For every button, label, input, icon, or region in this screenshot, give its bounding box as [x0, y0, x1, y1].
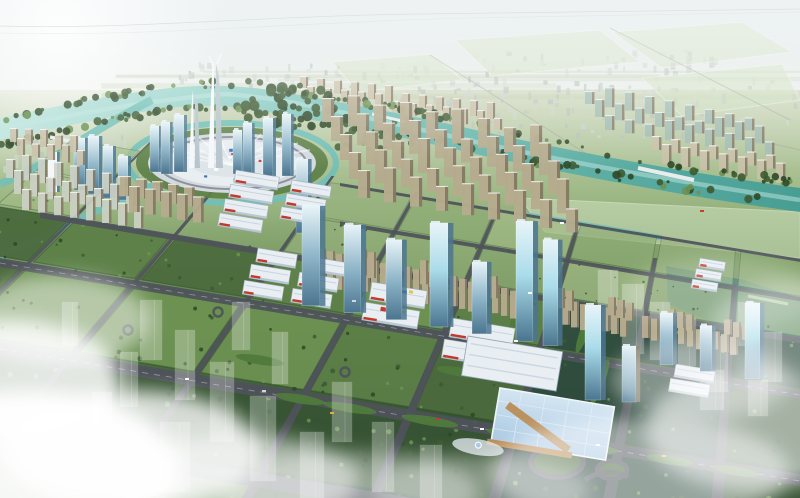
residential-roof	[184, 186, 195, 187]
residential-tower	[177, 194, 185, 220]
parcel-tree	[178, 276, 182, 280]
residential-tower-side	[137, 186, 140, 212]
residential-tower-side	[393, 167, 396, 202]
residential-roof	[168, 184, 179, 185]
ghost-building	[175, 330, 195, 400]
car	[480, 428, 484, 430]
glass-tower-crown	[544, 238, 552, 240]
car	[262, 390, 266, 392]
residential-roof	[46, 177, 55, 178]
parcel-tree	[116, 234, 118, 236]
parcel-tree	[439, 382, 443, 386]
parcel-tree	[261, 378, 266, 383]
aerial-masterplan-render	[0, 0, 800, 498]
glass-tower	[344, 225, 361, 313]
residential-slab	[566, 291, 572, 311]
residential-roof	[531, 181, 543, 182]
residential-tower-side	[445, 186, 448, 211]
residential-tower-side	[61, 196, 63, 215]
residential-tower	[86, 195, 93, 220]
residential-tower-side	[185, 194, 188, 220]
glass-tower	[585, 305, 601, 400]
car	[352, 300, 356, 302]
residential-tower	[384, 167, 393, 202]
parcel-tree	[493, 384, 496, 387]
residential-roof	[110, 184, 119, 185]
residential-tower	[505, 172, 514, 205]
residential-roof	[145, 189, 156, 190]
residential-tower	[410, 177, 419, 207]
parcel-tree	[396, 367, 399, 370]
bank-tree	[707, 186, 715, 194]
car	[700, 210, 704, 212]
parcel-tree	[41, 241, 43, 243]
residential-slab-side	[614, 297, 616, 315]
parcel-tree	[230, 277, 234, 281]
residential-roof	[193, 196, 204, 197]
residential-tower	[161, 191, 169, 217]
parcel-tree	[147, 252, 150, 255]
residential-roof	[120, 176, 131, 177]
residential-roof	[62, 181, 71, 182]
residential-roof	[505, 172, 517, 173]
residential-slab-side	[498, 285, 500, 313]
residential-slab-side	[577, 301, 579, 327]
residential-slab	[510, 291, 516, 319]
residential-tower-side	[53, 177, 55, 199]
parcel-tree	[269, 328, 272, 331]
residential-slab-side	[563, 288, 565, 308]
residential-roof	[70, 192, 79, 193]
glass-tower-side	[361, 225, 366, 313]
glass-tower-side	[558, 240, 563, 346]
residential-tower-side	[125, 203, 127, 226]
car	[528, 292, 532, 294]
atmosphere-wash	[0, 0, 800, 170]
parcel-tree	[470, 413, 474, 417]
parcel-tree	[236, 253, 240, 257]
glass-tower	[430, 223, 448, 327]
bank-tree	[628, 174, 634, 180]
expo-fountain	[475, 442, 482, 449]
residential-slab	[501, 288, 507, 316]
parcel-tree	[341, 243, 343, 245]
parcel-tree	[563, 339, 567, 343]
residential-tower-side	[201, 196, 204, 222]
residential-tower	[120, 176, 128, 196]
bank-tree	[731, 171, 735, 175]
parcel-tree	[460, 406, 463, 409]
residential-tower-side	[549, 199, 552, 228]
bank-tree	[696, 190, 700, 194]
residential-slab-side	[572, 291, 574, 311]
parcel-tree	[409, 440, 413, 444]
glass-tower-side	[402, 240, 407, 320]
residential-tower	[38, 193, 45, 213]
bank-tree	[782, 179, 789, 186]
residential-tower-side	[93, 169, 95, 191]
residential-tower-side	[141, 206, 143, 228]
ghost-building	[232, 302, 250, 350]
glass-tower-crown	[431, 221, 440, 223]
residential-roof	[54, 196, 63, 197]
residential-roof	[514, 190, 526, 191]
parcel-tree	[313, 335, 317, 339]
bank-tree	[612, 171, 621, 180]
bank-tree	[738, 173, 746, 181]
residential-slab-side	[623, 300, 625, 318]
car	[185, 378, 189, 380]
residential-tower	[427, 168, 436, 192]
glass-tower	[386, 240, 402, 320]
residential-tower-side	[109, 199, 111, 223]
bank-tree	[744, 195, 752, 203]
bank-tree	[772, 173, 779, 180]
residential-tower	[14, 170, 21, 194]
residential-slab-side	[456, 276, 458, 306]
parcel-tree	[298, 344, 302, 348]
residential-tower	[540, 199, 549, 228]
parcel-tree	[564, 363, 568, 367]
residential-tower	[514, 190, 523, 224]
glass-tower-side	[487, 262, 492, 334]
residential-tower-side	[29, 189, 31, 210]
parcel-tree	[238, 408, 243, 413]
parcel-tree	[596, 300, 598, 302]
residential-tower	[145, 189, 153, 215]
parcel-tree	[585, 293, 587, 295]
parcel-tree	[639, 414, 642, 417]
residential-roof	[479, 175, 491, 176]
parcel-tree	[448, 433, 452, 437]
bank-tree	[754, 193, 761, 200]
residential-slab	[420, 260, 426, 284]
residential-roof	[118, 203, 127, 204]
parcel-tree	[114, 356, 117, 359]
residential-slab	[617, 300, 623, 318]
car	[330, 412, 334, 414]
residential-tower-side	[45, 193, 47, 213]
residential-tower-side	[153, 189, 156, 215]
residential-tower-side	[93, 195, 95, 220]
glass-tower-crown	[303, 204, 312, 206]
residential-tower	[436, 186, 445, 211]
glass-tower-crown	[517, 219, 526, 221]
plaza-pavilion	[204, 175, 207, 177]
residential-roof	[136, 179, 147, 180]
residential-tower-side	[523, 190, 526, 224]
parcel-tree	[607, 398, 610, 401]
parcel-tree	[291, 338, 294, 341]
residential-tower	[193, 196, 201, 222]
parcel-tree	[407, 450, 413, 456]
residential-tower	[488, 193, 497, 220]
parcel-tree	[307, 419, 311, 423]
parcel-tree	[32, 199, 34, 201]
residential-roof	[177, 194, 188, 195]
car	[560, 222, 564, 224]
residential-tower	[118, 203, 125, 226]
glass-tower-crown	[623, 344, 630, 346]
residential-tower	[557, 178, 566, 213]
residential-tower	[462, 183, 471, 215]
residential-roof	[566, 208, 578, 209]
residential-slab-side	[507, 288, 509, 316]
residential-tower	[566, 208, 575, 232]
glass-tower	[543, 240, 558, 346]
residential-roof	[30, 174, 39, 175]
residential-roof	[129, 186, 140, 187]
bank-tree	[667, 180, 670, 183]
parcel-tree	[13, 242, 17, 246]
residential-roof	[557, 178, 569, 179]
residential-roof	[152, 181, 163, 182]
parcel-tree	[302, 346, 306, 350]
parcel-tree	[457, 316, 459, 318]
residential-roof	[102, 199, 111, 200]
glass-tower-side	[448, 223, 453, 327]
parcel-tree	[334, 229, 336, 231]
parcel-tree	[321, 390, 324, 393]
residential-tower-side	[169, 191, 172, 217]
residential-roof	[102, 173, 111, 174]
residential-slab-side	[426, 260, 428, 284]
residential-tower-side	[77, 192, 79, 218]
parcel-tree	[420, 406, 423, 409]
residential-roof	[38, 193, 47, 194]
bank-tree	[657, 179, 664, 186]
residential-roof	[22, 189, 31, 190]
parcel-tree	[210, 287, 214, 291]
parcel-tree	[171, 387, 174, 390]
parcel-tree	[321, 384, 324, 387]
bank-tree	[764, 176, 770, 182]
residential-roof	[540, 199, 552, 200]
residential-tower-side	[367, 170, 370, 198]
parcel-tree	[208, 314, 211, 317]
parcel-tree	[7, 218, 10, 221]
parcel-tree	[123, 271, 126, 274]
glass-tower	[472, 262, 487, 334]
parcel-tree	[139, 259, 141, 261]
bank-tree	[687, 184, 693, 190]
residential-tower	[54, 196, 61, 215]
glass-tower-side	[320, 206, 325, 306]
residential-tower	[358, 170, 367, 198]
parcel-tree	[371, 392, 375, 396]
glass-tower-crown	[586, 303, 594, 305]
glass-tower-side	[533, 221, 538, 341]
glass-tower-side	[601, 305, 606, 400]
parcel-tree	[344, 358, 347, 361]
residential-tower-side	[471, 183, 474, 215]
parcel-tree	[539, 278, 541, 280]
residential-slab-side	[465, 279, 467, 309]
parcel-tree	[422, 437, 425, 440]
car	[436, 418, 440, 420]
parcel-tree	[4, 256, 7, 259]
residential-tower	[70, 192, 77, 218]
residential-roof	[14, 170, 23, 171]
parcel-tree	[346, 332, 349, 335]
parcel-tree	[118, 274, 121, 277]
parcel-tree	[386, 382, 389, 385]
residential-roof	[161, 191, 172, 192]
residential-tower	[479, 175, 488, 201]
residential-tower-side	[419, 177, 422, 207]
parcel-tree	[81, 254, 84, 257]
residential-roof	[94, 188, 103, 189]
residential-roof	[410, 177, 422, 178]
residential-tower-side	[566, 178, 569, 213]
parcel-tree	[34, 221, 37, 224]
residential-roof	[488, 193, 500, 194]
parcel-tree	[219, 282, 222, 285]
residential-slab-side	[374, 252, 376, 278]
residential-tower	[531, 181, 540, 209]
residential-slab-side	[496, 276, 498, 298]
bank-tree	[769, 179, 774, 184]
mist-right-2	[610, 340, 790, 420]
parcel-tree	[417, 308, 420, 311]
glass-tower-crown	[473, 260, 481, 262]
residential-roof	[436, 186, 448, 187]
render-canvas	[0, 0, 800, 498]
parcel-tree	[167, 264, 171, 268]
residential-tower	[22, 189, 29, 210]
residential-tower-side	[497, 193, 500, 220]
parcel-tree	[199, 347, 203, 351]
residential-roof	[78, 184, 87, 185]
glass-tower-crown	[345, 223, 354, 225]
ghost-building	[272, 332, 288, 384]
parcel-tree	[400, 387, 404, 391]
ghost-building	[332, 382, 352, 442]
parcel-tree	[193, 307, 197, 311]
residential-roof	[462, 183, 474, 184]
parcel-tree	[387, 336, 390, 339]
parcel-tree	[164, 259, 167, 262]
residential-slab	[459, 279, 465, 309]
residential-slab	[368, 252, 374, 278]
bank-tree	[618, 178, 622, 182]
bank-tree	[787, 177, 790, 180]
car	[514, 340, 518, 342]
glass-tower	[302, 206, 320, 306]
parcel-tree	[150, 239, 152, 241]
residential-tower	[129, 186, 137, 212]
residential-tower	[102, 199, 109, 223]
residential-tower-side	[575, 208, 578, 232]
parcel-tree	[55, 244, 57, 246]
residential-slab	[608, 297, 614, 315]
residential-roof	[86, 195, 95, 196]
glass-tower-crown	[387, 238, 395, 240]
parcel-tree	[330, 369, 335, 374]
parcel-tree	[59, 239, 63, 243]
glass-tower	[516, 221, 533, 341]
parcel-tree	[437, 439, 443, 445]
residential-roof	[358, 170, 370, 171]
